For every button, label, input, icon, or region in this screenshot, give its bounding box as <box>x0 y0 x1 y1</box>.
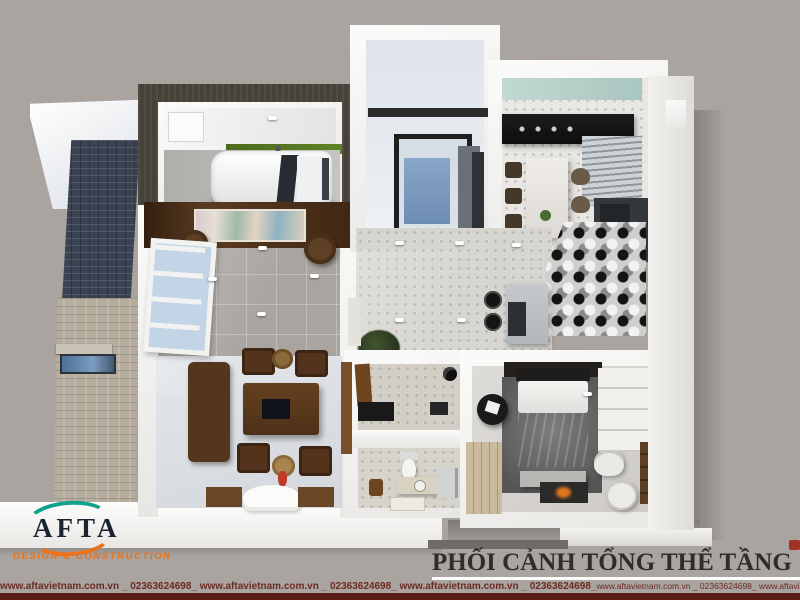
sofa-armchair-top-left <box>242 348 275 375</box>
dining-chair-l2 <box>505 188 522 204</box>
downlight <box>395 318 404 322</box>
page-title: PHỐI CẢNH TỔNG THỂ TẦNG 1 <box>432 549 798 577</box>
footer-watermark-row: www.aftavietnam.com.vn _ 02363624698_ ww… <box>0 580 800 593</box>
downlight <box>512 243 521 247</box>
stair-beam <box>368 108 488 117</box>
bed-headboard <box>516 368 590 381</box>
island-dark-front <box>508 302 526 336</box>
downlight <box>457 318 466 322</box>
bar-stool-2 <box>484 313 502 331</box>
footer-maroon-bar <box>0 593 800 600</box>
sofa-long-left <box>188 362 230 462</box>
kitchen-ceiling-teal <box>502 78 642 100</box>
fan-rug <box>243 485 301 511</box>
bed-pillow-zone <box>518 381 588 413</box>
boundary-stone-wall <box>52 298 140 510</box>
downlight <box>455 241 464 245</box>
stone-wall-window-lintel <box>56 344 112 354</box>
downlight <box>268 116 277 120</box>
car-roof <box>297 156 322 202</box>
garage-skylight <box>168 112 204 142</box>
slat-mat-right <box>298 487 334 507</box>
living-window-bars <box>147 244 205 341</box>
bar-stool-1 <box>484 291 502 309</box>
dining-chair-l1 <box>505 162 522 178</box>
bedroom-chair <box>594 449 624 476</box>
downlight <box>395 241 404 245</box>
kitchen-louver-shutter <box>582 136 642 206</box>
sofa-armchair-bottom-left <box>237 443 270 473</box>
downlight <box>208 277 217 281</box>
shower-tray <box>390 497 425 511</box>
footer-watermark-bold: www.aftavietnam.com.vn _ 02363624698_ ww… <box>0 581 596 592</box>
coffee-table-tray <box>262 399 290 419</box>
bath-wood-shelf <box>355 364 373 407</box>
right-top-block <box>666 100 686 128</box>
brand-logo: AFTA <box>33 513 121 544</box>
bath-divider-wall <box>352 430 466 448</box>
bath-side-cabinet <box>437 468 458 498</box>
sofa-armchair-bottom-right <box>299 446 332 476</box>
bath-black-counter <box>358 402 394 421</box>
cooktop-burners <box>514 125 578 133</box>
console-fire-glow <box>556 487 571 498</box>
bath-wood-stool <box>369 479 383 496</box>
bedroom-plank-floor <box>466 442 502 514</box>
living-wall-painting <box>194 209 306 242</box>
bed-blanket <box>518 413 588 467</box>
stone-wall-window <box>60 354 116 374</box>
bath-round-sink <box>443 367 457 381</box>
brand-tagline: DESIGN & CONSTRUCTION <box>13 551 172 562</box>
slab-corner-right <box>560 528 712 546</box>
boundary-tiled-roof <box>62 140 140 302</box>
sofa-armchair-top-right <box>295 350 328 377</box>
slab-shade-band <box>428 540 568 549</box>
dining-chair-r2 <box>571 196 590 213</box>
car-mirror-top <box>275 146 281 151</box>
bedroom-round-table <box>606 481 637 510</box>
render-canvas: AFTA DESIGN & CONSTRUCTION PHỐI CẢNH TỔN… <box>0 0 800 600</box>
hall-shutter <box>348 298 361 346</box>
downlight <box>258 246 267 250</box>
right-wall-band <box>648 76 694 530</box>
downlight <box>310 274 319 278</box>
car-rear-glass <box>322 158 329 200</box>
living-drum-stool-right <box>304 234 336 264</box>
house-cast-shadow-right <box>692 110 726 540</box>
footer-watermark-regular: www.aftavietnam.com.vn _ 02363624698_ ww… <box>596 581 800 591</box>
stair-skylight-glass <box>404 158 450 224</box>
bath-vanity-sink <box>414 480 426 492</box>
dining-table <box>526 158 568 238</box>
side-table-top <box>272 349 293 369</box>
dining-chair-r1 <box>571 168 590 185</box>
dining-plant <box>540 210 551 221</box>
downlight <box>583 392 592 396</box>
hex-mosaic-floor <box>546 222 646 336</box>
bath-door-wood <box>341 362 352 454</box>
slat-mat-left <box>206 487 242 507</box>
bath-black-mat <box>430 402 448 415</box>
downlight <box>257 312 266 316</box>
